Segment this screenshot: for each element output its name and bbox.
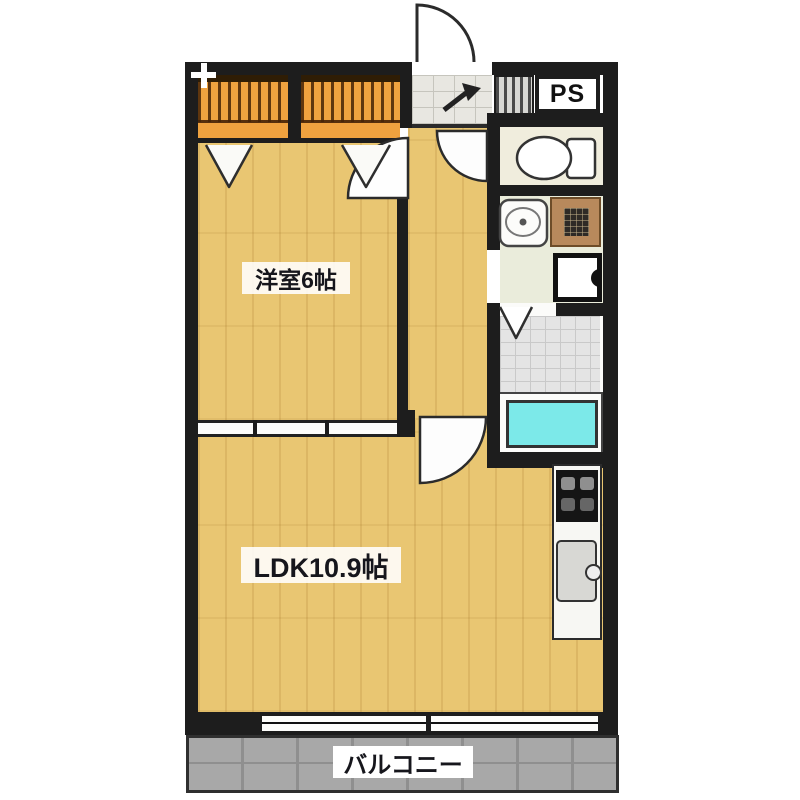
ldk-door-swing <box>420 417 486 483</box>
pan-drain-icon <box>591 269 600 287</box>
western-room-label: 洋室6帖 <box>242 262 350 294</box>
washbasin-drain-icon <box>520 219 527 226</box>
floor-plan: PS <box>0 0 800 800</box>
bathroom-door-icon <box>500 307 532 338</box>
balcony-label: バルコニー <box>333 746 473 778</box>
entrance-arrow-icon <box>444 93 466 110</box>
symbol-overlay <box>0 0 800 800</box>
balcony-label-text: バルコニー <box>343 745 463 780</box>
toilet-bowl-icon <box>517 137 571 179</box>
ldk-label: LDK10.9帖 <box>241 547 401 583</box>
closet-door-icon <box>206 145 252 187</box>
western-room-label-text: 洋室6帖 <box>255 261 337 295</box>
entrance-door-swing <box>417 5 474 62</box>
hall-door-swing <box>437 131 487 181</box>
ldk-label-text: LDK10.9帖 <box>253 546 388 585</box>
